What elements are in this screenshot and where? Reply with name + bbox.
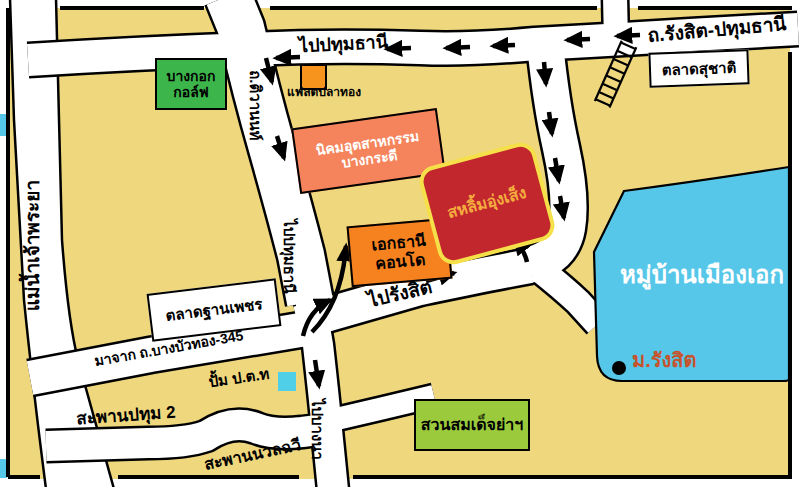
muang-ake-village-label: หมู่บ้านเมืองเอก <box>620 262 782 289</box>
suchat-market-label: ตลาดสุชาติ <box>661 59 736 79</box>
thai-direction-map: บางกอก กอล์ฟ ตลาดสุชาติ นิคมอุตสาหกรรม บ… <box>0 0 800 487</box>
ptt-pump-marker <box>278 372 296 391</box>
river-edge-sliver-bottom <box>0 459 7 478</box>
tiwanon-road-label: ถ.ติวานนท์ <box>247 45 264 165</box>
rangsit-university-label: ม.รังสิต <box>632 349 722 371</box>
bangkok-golf-label-line2: กอล์ฟ <box>173 84 208 100</box>
rangsit-university-dot <box>612 361 626 375</box>
suan-somdet-label: สวนสมเด็จย่าฯ <box>421 416 524 434</box>
destination-label: สหลิ้มอุ่งเส็ง <box>445 184 528 223</box>
river-edge-sliver-top <box>0 114 7 136</box>
bangkok-golf-label-line1: บางกอก <box>167 68 216 84</box>
flat-plathong-label: แฟลตปลาทอง <box>284 86 364 99</box>
bangkok-golf-box: บางกอก กอล์ฟ <box>155 58 227 110</box>
thanphet-market-label: ตลาดฐานเพชร <box>165 296 264 325</box>
to-bangna-label: ไปบางนา <box>309 384 326 474</box>
to-pathumthani-vertical-label: ไปปทุมธานี <box>281 201 298 311</box>
suan-somdet-box: สวนสมเด็จย่าฯ <box>414 399 530 451</box>
river-label: แม่น้ำเจ้าพระยา <box>22 156 43 336</box>
suchat-market-box: ตลาดสุชาติ <box>648 49 749 87</box>
ekthani-label-line2: คอนโด <box>374 250 426 271</box>
